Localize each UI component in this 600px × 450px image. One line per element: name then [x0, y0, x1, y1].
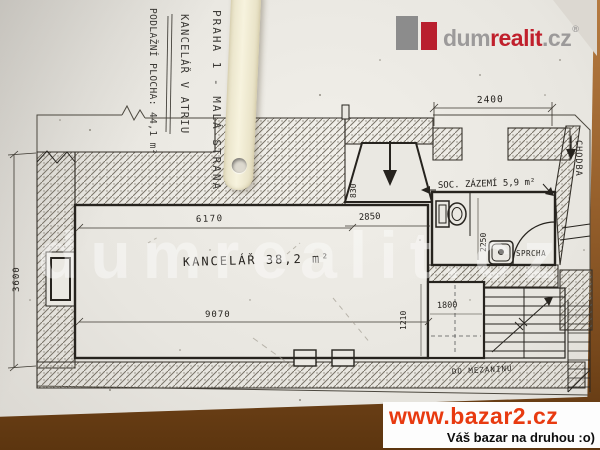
logo-part-dum: dum: [443, 25, 490, 51]
dim-office-height: 3600: [12, 266, 22, 292]
fastener-hole: [231, 158, 247, 174]
dim-bay-width: 2400: [477, 94, 504, 106]
landing-outline: [428, 282, 484, 358]
logo-gray-bar-icon: [396, 16, 418, 50]
logo-part-realit: realit: [490, 25, 542, 51]
handwriting-location: PRAHA 1 - MALÁ STRANA: [210, 10, 223, 191]
dim-entry-depth: 830: [349, 183, 358, 198]
bazar2-url: www.bazar2.cz: [389, 404, 595, 429]
dumrealit-logo: dumrealit.cz®: [396, 16, 578, 50]
logo-part-cz: .cz: [542, 25, 571, 51]
handwriting-area: PODLAŽNÍ PLOCHA: 44,1 m²: [147, 8, 159, 155]
logo-red-bar-icon: [421, 22, 437, 50]
sanitary-room-label: SOC. ZÁZEMÍ 5,9 m²: [438, 176, 536, 191]
dim-landing-width: 1800: [437, 300, 458, 311]
handwriting-title: KANCELÁŘ V ATRIU: [178, 14, 191, 134]
logo-wordmark: dumrealit.cz®: [443, 25, 578, 50]
bazar2-tagline: Váš bazar na druhou :o): [389, 430, 595, 445]
floorplan-drawing: KANCELÁŘ 38,2 m² SOC. ZÁZEMÍ 5,9 m² SPRC…: [0, 0, 600, 450]
dim-office-bottom: 9070: [205, 310, 231, 320]
corridor-label: CHODBA: [573, 140, 583, 177]
dim-landing-height: 1210: [399, 311, 408, 330]
bazar2-banner: www.bazar2.cz Váš bazar na druhou :o): [383, 402, 600, 448]
photo-of-floorplan: KANCELÁŘ 38,2 m² SOC. ZÁZEMÍ 5,9 m² SPRC…: [0, 0, 600, 450]
registered-mark: ®: [572, 24, 578, 34]
